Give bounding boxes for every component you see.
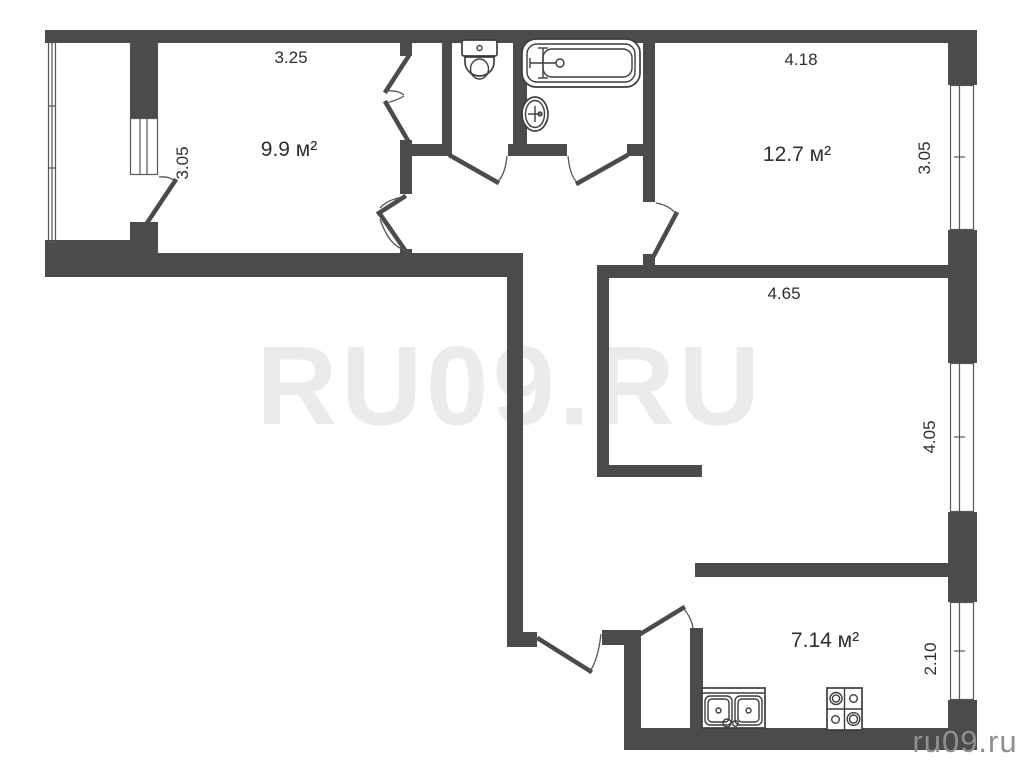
dim-room1-width: 3.25: [274, 48, 307, 68]
wall-hall-top-c: [627, 144, 643, 156]
wall-room1-right-c: [400, 249, 412, 277]
room1-lower-door: [379, 197, 405, 250]
room1-upper-door: [386, 57, 408, 139]
wall-entry-stub: [602, 630, 641, 645]
wall-corridor-right: [597, 278, 609, 477]
area-kitchen: 7.14 м²: [791, 629, 859, 653]
dim-room2-height: 3.05: [915, 141, 935, 174]
wall-hall-top-a: [412, 144, 450, 156]
toilet: [462, 40, 497, 79]
area-room2: 12.7 м²: [763, 143, 831, 167]
area-room1: 9.9 м²: [261, 138, 317, 162]
wall-kitchen-top: [695, 563, 948, 577]
dim-room3-height: 4.05: [920, 420, 940, 453]
dim-room3-width: 4.65: [767, 284, 800, 304]
dim-room1-height: 3.05: [173, 146, 193, 179]
bathroom-sink: [522, 97, 548, 131]
wall-balcony-room-upper: [130, 42, 158, 118]
bathtub: [522, 39, 640, 87]
entrance-door: [539, 634, 601, 671]
dim-room2-width: 4.18: [784, 50, 817, 70]
wall-corridor-left-foot: [507, 632, 537, 647]
kitchen-door: [642, 608, 693, 633]
wall-left-wing-bottom: [45, 253, 523, 277]
wc-door: [451, 156, 507, 182]
wall-middle-band: [597, 265, 977, 278]
stove: [827, 688, 862, 730]
balcony-glazing: [48, 43, 56, 243]
watermark-corner: ru09.ru: [912, 724, 1017, 760]
dim-kitchen-height: 2.10: [921, 642, 941, 675]
balcony-window: [131, 119, 158, 175]
wall-room1-right-a: [400, 42, 412, 56]
floor-plan: RU09.RU: [0, 0, 1024, 768]
room2-door: [651, 203, 676, 261]
bathroom-door: [568, 156, 626, 183]
wall-room2-left: [643, 42, 655, 202]
wall-wc-left: [442, 42, 452, 156]
wall-hall-top-b: [508, 144, 567, 156]
floor-plan-drawing: [0, 0, 1024, 768]
wall-hall-room-divider: [597, 465, 702, 477]
wall-corridor-left: [507, 277, 523, 647]
wall-top-exterior: [45, 30, 977, 43]
balcony-door: [147, 177, 175, 223]
wall-balcony-bottom: [45, 240, 158, 253]
kitchen-sink: [702, 688, 765, 728]
wall-room1-right-b: [400, 140, 412, 194]
